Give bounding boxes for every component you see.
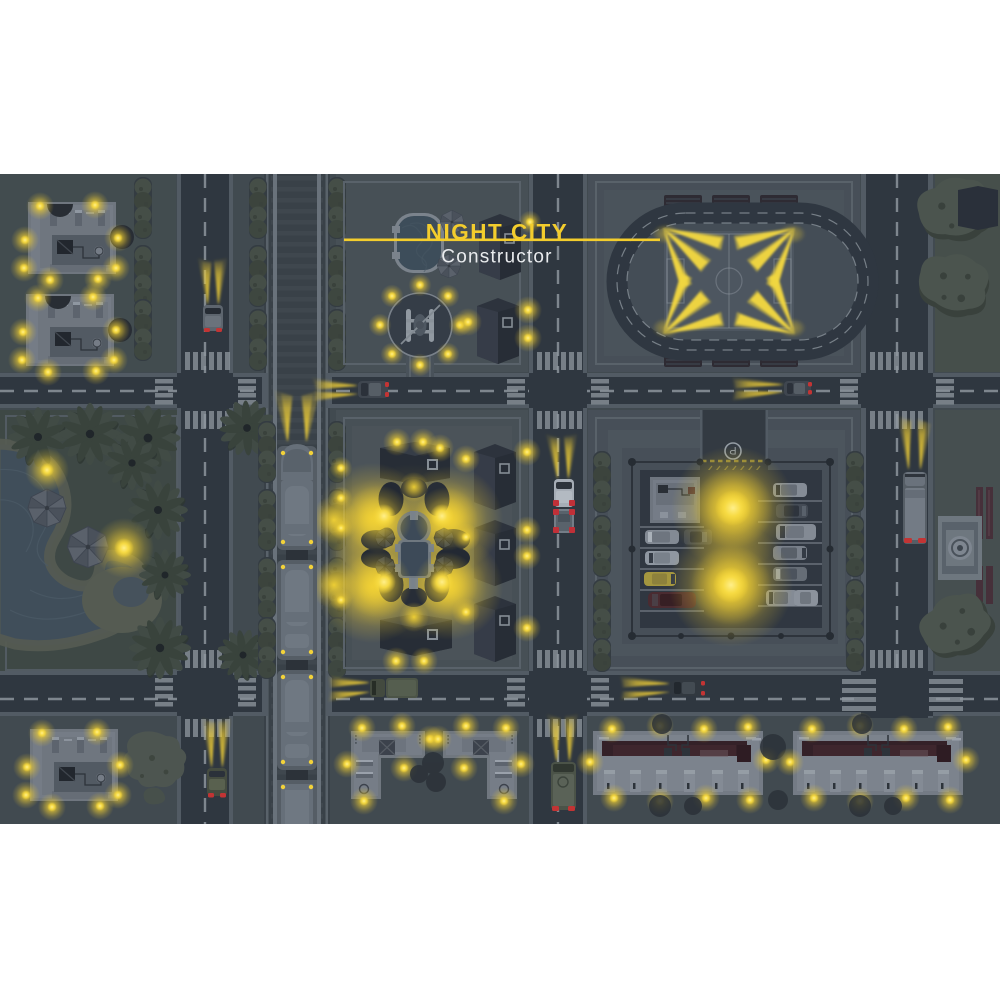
svg-text:NIGHT CITY: NIGHT CITY [426,220,569,245]
svg-text:Constructor: Constructor [441,247,552,268]
